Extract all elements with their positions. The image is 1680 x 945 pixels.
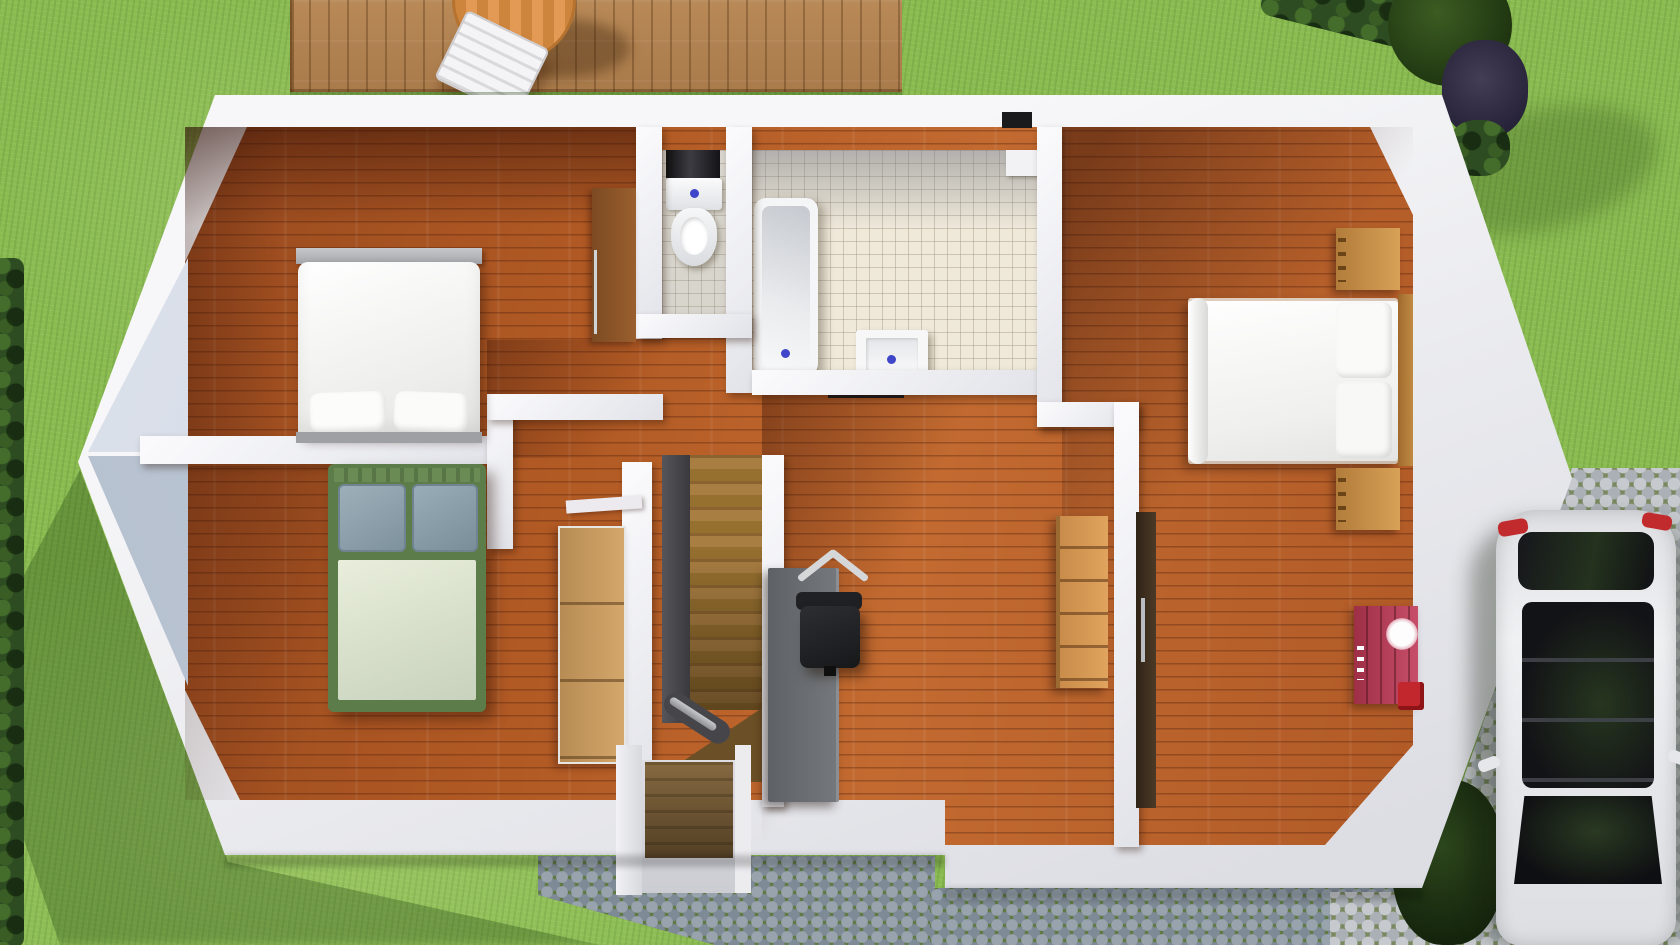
eave-contact-shadow-left [225, 855, 945, 867]
nightstand-bottom-drawers [1338, 478, 1346, 522]
wall-bath-bed3 [1037, 127, 1062, 427]
wardrobe-handle [594, 250, 597, 334]
bed1-pillow-right [393, 391, 468, 434]
red-box [1398, 682, 1424, 710]
bed2-headrail [334, 468, 480, 482]
car-rear-window [1518, 532, 1654, 590]
car-roof-glass [1522, 602, 1654, 788]
bed3-blanket-roll [1188, 298, 1208, 464]
bath-corner-shelf [1006, 150, 1038, 176]
nightstand-top-drawers [1338, 238, 1346, 282]
bed1-headboard [296, 432, 482, 443]
eave-contact-shadow-right [945, 888, 1423, 900]
bathtub-drain [781, 349, 790, 358]
wc-niche [666, 150, 720, 178]
bed3-headboard [1398, 294, 1413, 466]
bed2-pillow-right [412, 484, 478, 552]
bed2-duvet [338, 560, 476, 700]
hedge-left [0, 258, 24, 945]
wall-vent [1002, 112, 1032, 128]
dresser-knobs [1357, 646, 1364, 680]
car-windshield [1514, 796, 1662, 884]
wall-wc-bath [726, 127, 752, 393]
wall-bed1-south [487, 394, 663, 420]
bed1-wardrobe-door [592, 188, 636, 342]
toilet-bowl-inner [680, 217, 708, 255]
staircase-steps-shadow [690, 455, 762, 710]
bed3-pillow-bottom [1336, 382, 1392, 458]
shelf-unit [1056, 516, 1108, 688]
floor-plan-scene [0, 0, 1680, 945]
stairwell-wall-right [735, 745, 751, 893]
staircase-lower-shadow [645, 762, 733, 858]
door-handle [1141, 598, 1145, 662]
dark-door [1136, 512, 1156, 808]
bed3-pillow-top [1336, 302, 1392, 378]
bed1-pillow-left [309, 391, 386, 434]
wall-bed1-wc [636, 127, 662, 339]
bed2-closet [558, 526, 626, 764]
sink-drain [887, 355, 896, 364]
chair-base [824, 666, 836, 676]
stair-banister [662, 455, 690, 723]
stairwell-wall-left [616, 745, 642, 895]
bed2-pillow-left [338, 484, 406, 552]
toilet-flush-button [690, 189, 699, 198]
wall-bath-bottom [752, 370, 1042, 395]
dresser-mirror [1386, 618, 1418, 650]
office-chair-seat [800, 606, 860, 668]
bathtub-inner [762, 206, 810, 368]
wall-wc-bottom [636, 314, 752, 338]
